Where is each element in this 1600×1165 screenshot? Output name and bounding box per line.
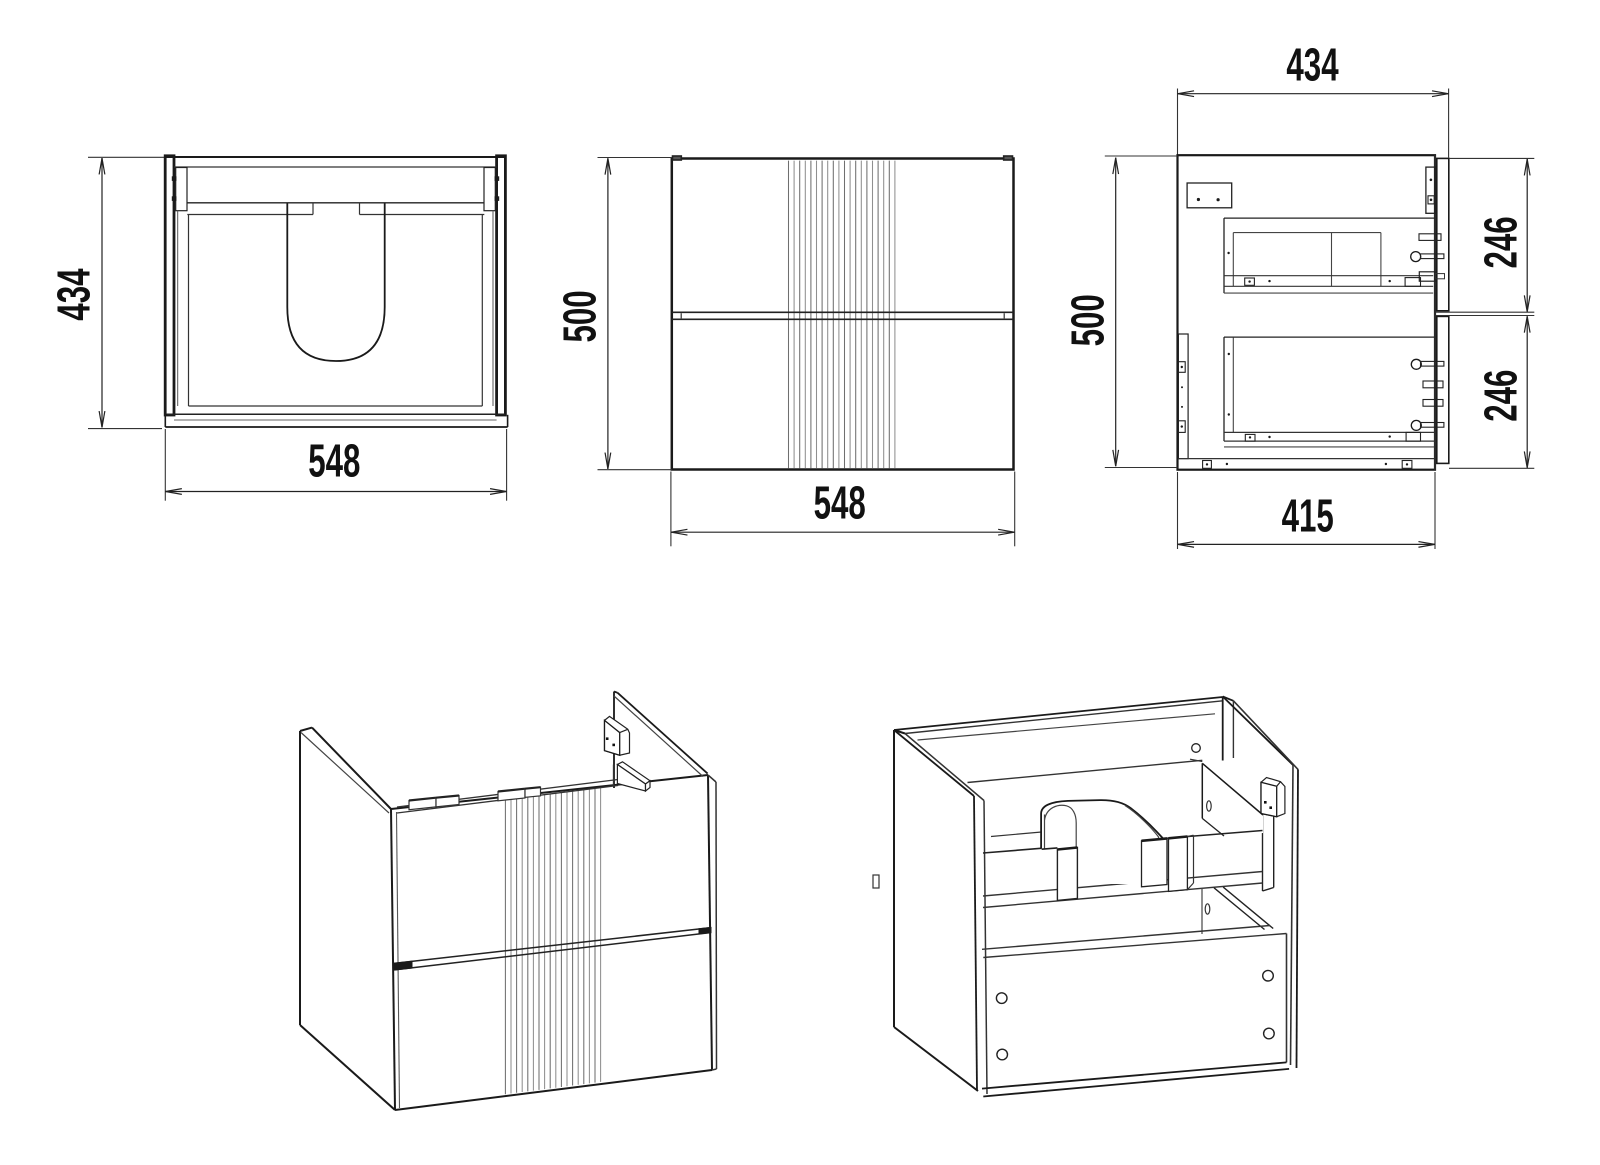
svg-text:500: 500 <box>554 290 605 342</box>
svg-text:548: 548 <box>308 436 360 487</box>
svg-text:548: 548 <box>814 478 866 529</box>
svg-text:246: 246 <box>1475 216 1526 268</box>
svg-text:415: 415 <box>1282 490 1334 541</box>
svg-text:434: 434 <box>1286 40 1338 91</box>
svg-text:246: 246 <box>1475 370 1526 422</box>
svg-text:500: 500 <box>1063 294 1114 346</box>
svg-text:434: 434 <box>49 268 100 320</box>
